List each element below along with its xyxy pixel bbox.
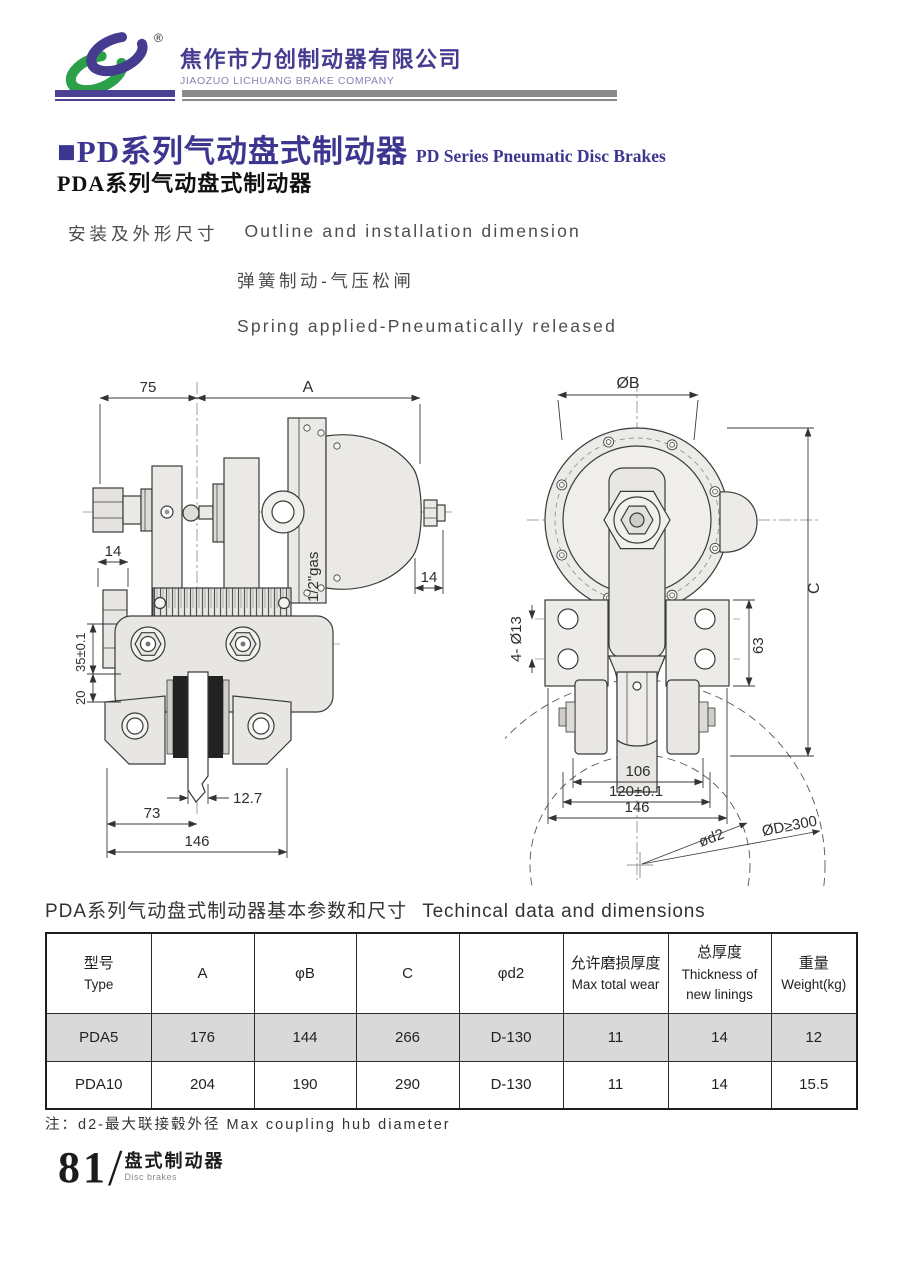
dim-phiD300: ØD≥300 — [761, 813, 819, 840]
cell: 290 — [356, 1061, 459, 1109]
dim-63: 63 — [750, 637, 767, 654]
cell: 11 — [563, 1061, 668, 1109]
page-number: 81 — [58, 1146, 108, 1190]
table-row-pda10: PDA10 204 190 290 D-130 11 14 15.5 — [46, 1061, 857, 1109]
intro-label-en: Outline and installation dimension — [245, 221, 582, 246]
col-A: A — [151, 933, 254, 1013]
company-name-cn: 焦作市力创制动器有限公司 — [180, 42, 462, 74]
dim-20: 20 — [75, 691, 88, 705]
col-phid2: φd2 — [459, 933, 563, 1013]
intro-label-cn: 安装及外形尺寸 — [68, 221, 219, 246]
catalog-page: ® 焦作市力创制动器有限公司 JIAOZUO LICHUANG BRAKE CO… — [0, 0, 900, 1273]
cell: 14 — [668, 1013, 771, 1061]
cell: 144 — [254, 1013, 356, 1061]
table-title: PDA系列气动盘式制动器基本参数和尺寸 Techincal data and d… — [45, 896, 705, 923]
dim-14-left: 14 — [105, 543, 122, 560]
table-note: 注：d2-最大联接毂外径 Max coupling hub diameter — [45, 1113, 451, 1134]
col-phiB: φB — [254, 933, 356, 1013]
drawing-side-view: 75 A 14 14 1/2"gas 35±0.1 20 12.7 73 146 — [75, 372, 460, 887]
cell: 14 — [668, 1061, 771, 1109]
dim-146-right: 146 — [624, 799, 649, 816]
dim-gas-port: 1/2"gas — [305, 552, 322, 602]
dim-75: 75 — [140, 379, 157, 396]
dim-4xphi13: 4- Ø13 — [508, 616, 525, 662]
cell: 204 — [151, 1061, 254, 1109]
dim-C: C — [806, 582, 823, 594]
dim-35: 35±0.1 — [75, 632, 88, 672]
cell: D-130 — [459, 1061, 563, 1109]
cell: 266 — [356, 1013, 459, 1061]
table-row-pda5: PDA5 176 144 266 D-130 11 14 12 — [46, 1013, 857, 1061]
dim-106: 106 — [625, 763, 650, 780]
company-name-en: JIAOZUO LICHUANG BRAKE COMPANY — [180, 75, 462, 87]
col-C: C — [356, 933, 459, 1013]
col-type: 型号 Type — [46, 933, 151, 1013]
cell: 176 — [151, 1013, 254, 1061]
table-header-row: 型号 Type A φB C φd2 允许磨损厚度 Max total wear… — [46, 933, 857, 1013]
divider-purple-bar — [55, 90, 175, 97]
col-thickness: 总厚度 Thickness of new linings — [668, 933, 771, 1013]
divider-purple-line — [55, 99, 175, 101]
table-title-en: Techincal data and dimensions — [422, 901, 705, 922]
spec-table: 型号 Type A φB C φd2 允许磨损厚度 Max total wear… — [45, 932, 858, 1110]
dim-A: A — [303, 379, 314, 396]
company-logo: ® — [50, 28, 175, 96]
drawing-front-view: ØB C 4- Ø13 63 106 120±0.1 146 ød2 ØD≥30… — [505, 372, 865, 887]
footer-section-en: Disc brakes — [124, 1172, 224, 1182]
col-max-wear: 允许磨损厚度 Max total wear — [563, 933, 668, 1013]
footer-slash: / — [108, 1146, 122, 1193]
intro-line3-en: Spring applied-Pneumatically released — [237, 316, 617, 337]
page-title-cn: ■PD系列气动盘式制动器 — [57, 126, 408, 171]
cell: PDA5 — [46, 1013, 151, 1061]
cell: 190 — [254, 1061, 356, 1109]
cell: PDA10 — [46, 1061, 151, 1109]
registered-icon: ® — [154, 31, 163, 45]
dim-12-7: 12.7 — [233, 790, 262, 807]
divider-gray-bar — [182, 90, 617, 97]
dim-120: 120±0.1 — [609, 783, 663, 800]
intro-block: 安装及外形尺寸 Outline and installation dimensi… — [68, 221, 617, 337]
dim-73: 73 — [144, 805, 161, 822]
page-footer: 81 / 盘式制动器 Disc brakes — [58, 1146, 224, 1193]
series-subtitle: PDA系列气动盘式制动器 — [57, 166, 312, 198]
cell: 11 — [563, 1013, 668, 1061]
table-title-cn: PDA系列气动盘式制动器基本参数和尺寸 — [45, 901, 407, 922]
divider-gray-line — [182, 99, 617, 101]
dim-phid2: ød2 — [696, 826, 726, 851]
cell: 15.5 — [771, 1061, 857, 1109]
page-title-en: PD Series Pneumatic Disc Brakes — [416, 146, 666, 167]
dim-14-right: 14 — [421, 569, 438, 586]
cell: D-130 — [459, 1013, 563, 1061]
dim-146-left: 146 — [184, 833, 209, 850]
footer-section-cn: 盘式制动器 — [124, 1152, 224, 1172]
col-weight: 重量 Weight(kg) — [771, 933, 857, 1013]
cell: 12 — [771, 1013, 857, 1061]
intro-line2-cn: 弹簧制动-气压松闸 — [237, 268, 617, 293]
dim-phiB: ØB — [616, 375, 639, 392]
company-name-block: 焦作市力创制动器有限公司 JIAOZUO LICHUANG BRAKE COMP… — [180, 42, 462, 87]
page-title: ■PD系列气动盘式制动器 PD Series Pneumatic Disc Br… — [57, 126, 666, 171]
